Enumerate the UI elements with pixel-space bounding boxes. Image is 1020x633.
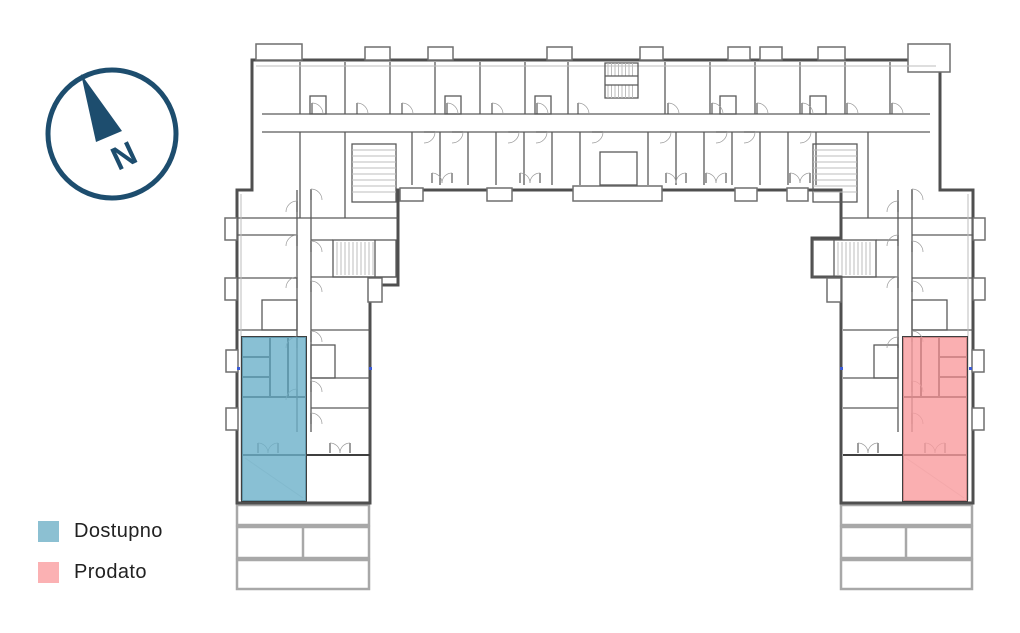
legend-item-sold: Prodato	[38, 561, 163, 584]
lower-terraces	[237, 505, 972, 589]
building-outline	[237, 60, 973, 503]
stair-core	[605, 63, 638, 98]
compass-needle-icon	[81, 74, 122, 142]
legend-label-available: Dostupno	[74, 520, 163, 543]
floor-selector-page: N Dostupno Prodato	[0, 0, 1020, 633]
window-markers	[237, 367, 972, 370]
legend-label-sold: Prodato	[74, 561, 147, 584]
balconies	[225, 44, 985, 430]
unit-available-overlay[interactable]	[242, 337, 306, 501]
unit-sold-overlay[interactable]	[903, 337, 967, 501]
sold-swatch-icon	[38, 562, 59, 583]
compass-north-label: N	[105, 134, 142, 178]
available-swatch-icon	[38, 521, 59, 542]
legend-item-available: Dostupno	[38, 520, 163, 543]
compass: N	[40, 63, 185, 208]
legend: Dostupno Prodato	[38, 520, 163, 602]
